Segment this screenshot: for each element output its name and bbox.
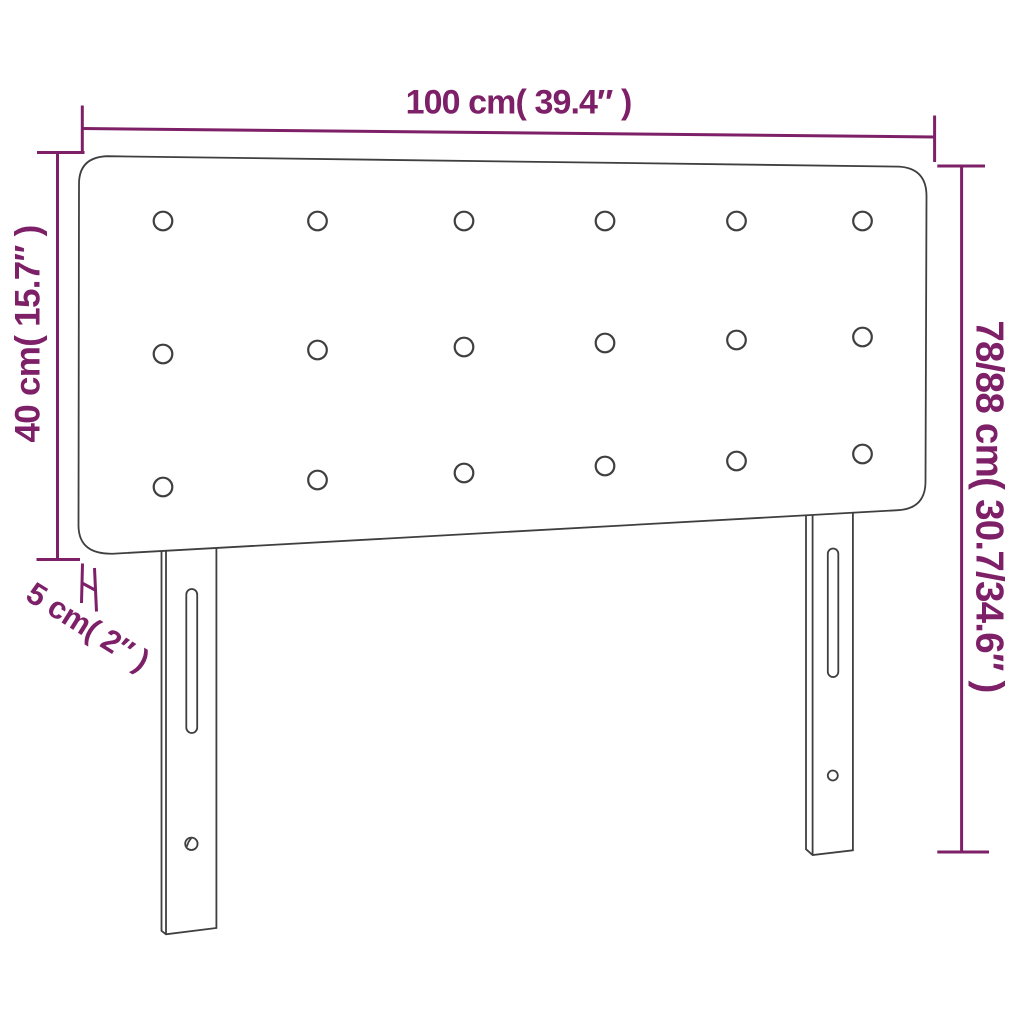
svg-text:100 cm( 39.4″ ): 100 cm( 39.4″ ): [406, 84, 632, 122]
svg-text:78/88 cm( 30.7/34.6″ ): 78/88 cm( 30.7/34.6″ ): [968, 320, 1011, 692]
svg-text:40 cm( 15.7″ ): 40 cm( 15.7″ ): [9, 225, 48, 442]
